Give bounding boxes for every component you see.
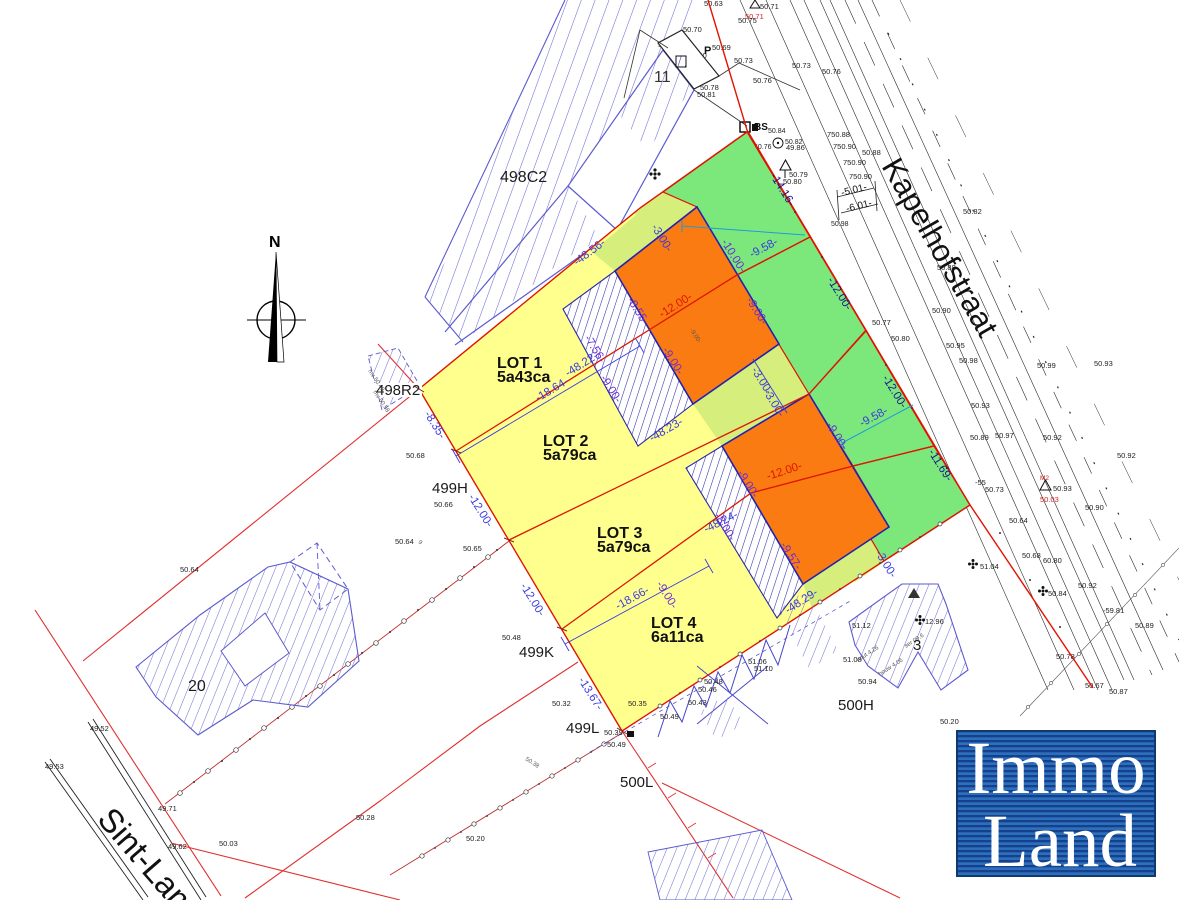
svg-text:50.81: 50.81 (697, 90, 716, 99)
svg-text:50.90: 50.90 (932, 306, 951, 315)
svg-text:50.66: 50.66 (434, 500, 453, 509)
svg-text:3: 3 (913, 637, 921, 654)
svg-text:-55: -55 (975, 478, 986, 487)
svg-text:50.70: 50.70 (683, 25, 702, 34)
svg-text:50.73: 50.73 (985, 485, 1004, 494)
svg-text:50.03: 50.03 (1040, 495, 1059, 504)
svg-text:50.84: 50.84 (1048, 589, 1067, 598)
svg-text:50.92: 50.92 (1117, 451, 1136, 460)
svg-text:498C2: 498C2 (500, 169, 547, 186)
svg-text:50.82: 50.82 (785, 139, 803, 146)
svg-text:50.80: 50.80 (891, 334, 910, 343)
svg-text:750.90: 750.90 (843, 158, 866, 167)
svg-text:50.89: 50.89 (1135, 621, 1154, 630)
svg-text:50.92: 50.92 (1043, 433, 1062, 442)
svg-text:49.53: 49.53 (45, 762, 64, 771)
svg-text:50.67: 50.67 (1085, 681, 1104, 690)
svg-text:50.77: 50.77 (872, 318, 891, 327)
svg-text:50.93: 50.93 (1094, 359, 1113, 368)
svg-text:5a43ca: 5a43ca (497, 369, 550, 386)
svg-text:6a11ca: 6a11ca (651, 629, 704, 646)
svg-text:-59.81: -59.81 (1103, 606, 1124, 615)
svg-text:498R2: 498R2 (376, 382, 420, 399)
svg-text:M2: M2 (1040, 475, 1049, 482)
svg-text:750.88: 750.88 (827, 130, 850, 139)
svg-text:50.03: 50.03 (219, 839, 238, 848)
svg-text:11: 11 (654, 69, 671, 86)
svg-text:500L: 500L (620, 774, 653, 791)
svg-text:50.92: 50.92 (1078, 581, 1097, 590)
svg-text:750.90: 750.90 (833, 142, 856, 151)
svg-text:50.89: 50.89 (970, 433, 989, 442)
svg-text:50.93: 50.93 (1053, 484, 1072, 493)
svg-text:499L: 499L (566, 720, 599, 737)
svg-text:50.64: 50.64 (180, 565, 199, 574)
svg-text:50.98: 50.98 (959, 356, 978, 365)
svg-text:50.76: 50.76 (753, 76, 772, 85)
svg-text:20: 20 (188, 678, 206, 695)
svg-text:50.68: 50.68 (1022, 551, 1041, 560)
svg-text:50.20: 50.20 (466, 834, 485, 843)
svg-text:50.48: 50.48 (502, 633, 521, 642)
svg-text:BS: BS (754, 122, 768, 133)
svg-text:50.71: 50.71 (760, 2, 779, 11)
svg-text:50.76: 50.76 (822, 67, 841, 76)
svg-text:50.84: 50.84 (768, 128, 786, 135)
svg-text:50.99: 50.99 (1037, 361, 1056, 370)
svg-text:49.71: 49.71 (158, 804, 177, 813)
svg-text:51.04: 51.04 (980, 562, 999, 571)
svg-text:49.62: 49.62 (168, 842, 187, 851)
svg-text:50.90: 50.90 (1085, 503, 1104, 512)
svg-text:Land: Land (983, 800, 1137, 883)
svg-text:50.98: 50.98 (831, 221, 849, 228)
svg-text:Immo: Immo (966, 727, 1145, 810)
svg-text:50.94: 50.94 (858, 677, 877, 686)
svg-text:5a79ca: 5a79ca (597, 539, 650, 556)
svg-text:51.12: 51.12 (852, 621, 871, 630)
svg-text:50.32: 50.32 (552, 699, 571, 708)
svg-text:N: N (269, 234, 281, 251)
svg-text:750.90: 750.90 (849, 172, 872, 181)
svg-text:499K: 499K (519, 644, 554, 661)
svg-text:50.95: 50.95 (946, 341, 965, 350)
svg-text:50.49: 50.49 (660, 712, 679, 721)
svg-text:50.65: 50.65 (463, 544, 482, 553)
svg-text:50.46: 50.46 (698, 685, 717, 694)
svg-text:50.82: 50.82 (963, 207, 982, 216)
svg-text:499H: 499H (432, 480, 468, 497)
svg-text:50.73: 50.73 (792, 61, 811, 70)
svg-text:50.88: 50.88 (937, 263, 956, 272)
svg-text:50.88: 50.88 (862, 148, 881, 157)
svg-text:60.80: 60.80 (1043, 556, 1062, 565)
svg-text:P: P (704, 45, 711, 57)
svg-text:50.35: 50.35 (628, 699, 647, 708)
svg-text:50.87: 50.87 (1109, 687, 1128, 696)
svg-text:50.49: 50.49 (607, 740, 626, 749)
svg-text:51.06: 51.06 (748, 657, 767, 666)
svg-text:50.20: 50.20 (940, 717, 959, 726)
svg-text:50.64: 50.64 (1009, 516, 1028, 525)
svg-text:50.93: 50.93 (971, 401, 990, 410)
svg-text:50.68: 50.68 (406, 451, 425, 460)
svg-text:50.64: 50.64 (395, 537, 414, 546)
svg-text:50.73: 50.73 (734, 56, 753, 65)
svg-text:500H: 500H (838, 697, 874, 714)
svg-text:50.63: 50.63 (704, 0, 723, 8)
svg-text:49.52: 49.52 (90, 724, 109, 733)
svg-text:50.97: 50.97 (995, 431, 1014, 440)
svg-text:12.96: 12.96 (925, 617, 944, 626)
svg-text:50.75: 50.75 (738, 16, 757, 25)
svg-text:50.43: 50.43 (688, 698, 707, 707)
svg-text:5a79ca: 5a79ca (543, 447, 596, 464)
svg-text:50.28: 50.28 (356, 813, 375, 822)
